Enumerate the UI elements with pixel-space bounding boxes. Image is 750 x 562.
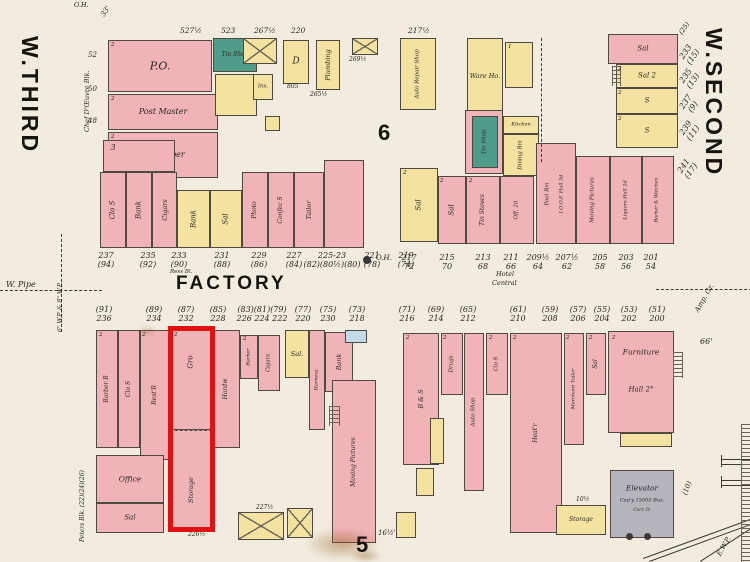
building-label: Hall 2° bbox=[629, 387, 654, 394]
building-label: Clo S bbox=[110, 201, 117, 220]
address-label: (89)234 bbox=[146, 306, 162, 324]
address-line: (86) bbox=[251, 261, 267, 270]
building-label: Auto Shop bbox=[471, 398, 477, 427]
address-line: 236 bbox=[96, 315, 112, 324]
building-label: Sal. bbox=[291, 351, 303, 358]
building-office: Office bbox=[96, 455, 164, 503]
floor-count-mark: 2 bbox=[142, 333, 146, 339]
floor-count-mark: 2 bbox=[406, 336, 410, 342]
hotel-central-label: Central bbox=[492, 280, 517, 287]
address-line: 208 bbox=[542, 315, 558, 324]
address-label: (85)228 bbox=[210, 306, 226, 324]
building-label: Moving Pictures bbox=[351, 437, 357, 487]
address-line: (88) bbox=[214, 261, 230, 270]
floor-count-mark: 2 bbox=[111, 135, 115, 141]
address-label: 233(90) bbox=[171, 252, 187, 270]
address-line: 218 bbox=[349, 315, 365, 324]
address-label: (51)200 bbox=[649, 306, 665, 324]
address-line: 206 bbox=[570, 315, 586, 324]
address-label: 237(94) bbox=[98, 252, 114, 270]
address-line: (94) bbox=[98, 261, 114, 270]
floor-count-mark: 2 bbox=[111, 97, 115, 103]
building-moving-pictures: Moving Pictures bbox=[332, 380, 376, 543]
address-line: 226 224 222 bbox=[237, 315, 288, 324]
floor-count-mark: 2 bbox=[566, 336, 570, 342]
measure-16half: 16½' bbox=[378, 530, 396, 537]
address-line: 72 bbox=[401, 263, 416, 272]
building-label: Sal bbox=[637, 46, 648, 53]
building-label: Merchant Tailor bbox=[572, 369, 577, 410]
address-line: (84) bbox=[286, 261, 302, 270]
address-line: 214 bbox=[428, 315, 444, 324]
building-unlabeled bbox=[352, 38, 378, 55]
addr-217half: 217½ bbox=[408, 27, 430, 35]
building-label: Moving Pictures bbox=[590, 177, 596, 223]
building-off-2d: Off. 2d bbox=[500, 176, 534, 244]
building-clo-s: Clo S bbox=[118, 330, 140, 448]
building-label: I.O.O.F. Hall 3d bbox=[560, 174, 565, 213]
measure-10: (10) bbox=[682, 480, 693, 496]
building-rest-r: Rest'R bbox=[140, 330, 170, 460]
address-label: 207½62 bbox=[555, 254, 578, 272]
building-bank: Bank bbox=[126, 172, 152, 248]
floor-count-mark: 2 bbox=[618, 91, 622, 97]
building-plumbing: Plumbing bbox=[316, 40, 340, 90]
building-unlabeled bbox=[238, 512, 284, 540]
building-label: Tailor bbox=[306, 201, 313, 220]
building-label: S bbox=[645, 128, 650, 135]
building-label: Rest'R bbox=[152, 385, 158, 405]
highlight-rectangle bbox=[168, 326, 215, 532]
building-pool-rm: Pool RmI.O.O.F. Hall 3d bbox=[536, 143, 576, 244]
address-line: 56 bbox=[618, 263, 633, 272]
building-sal: Sal. bbox=[285, 330, 309, 378]
address-line: 204 bbox=[594, 315, 610, 324]
address-line: 212 bbox=[460, 315, 476, 324]
address-label: (61)210 bbox=[510, 306, 526, 324]
building-label: Barber bbox=[247, 348, 252, 366]
address-label: (65)212 bbox=[460, 306, 476, 324]
building-unlabeled bbox=[620, 433, 672, 447]
building-unlabeled bbox=[287, 508, 313, 538]
amp-gr-label: Amp. Gr. bbox=[694, 283, 716, 313]
building-furniture: FurnitureHall 2° bbox=[608, 331, 674, 433]
oh-mark: O.H. bbox=[376, 255, 392, 262]
building-label: Barber B bbox=[104, 375, 110, 402]
addr-25: (25) bbox=[678, 21, 691, 36]
building-label: S bbox=[645, 98, 650, 105]
ress-bl-label: Ress Bl. bbox=[170, 270, 192, 276]
address-line: 200 bbox=[649, 315, 665, 324]
address-label: 225-23(82)(80½)(80) bbox=[303, 252, 360, 270]
building-label: B & S bbox=[418, 389, 425, 408]
block-number-5: 5 bbox=[356, 534, 368, 556]
stairs-hatch-icon bbox=[741, 424, 750, 562]
address-line: (82)(80½)(80) bbox=[303, 261, 360, 270]
building-sal: Sal bbox=[608, 34, 678, 64]
address-label: (69)214 bbox=[428, 306, 444, 324]
building-label: Tin Stoves bbox=[480, 194, 486, 226]
building-label: Elevator bbox=[626, 484, 658, 492]
address-label: 237(9) bbox=[678, 93, 701, 116]
building-label: Office bbox=[119, 475, 142, 483]
floor-count-mark: 2 bbox=[589, 336, 593, 342]
building-unlabeled bbox=[215, 74, 257, 116]
water-pipe-label: W. Pipe bbox=[6, 281, 36, 289]
address-line: 232 bbox=[178, 315, 194, 324]
floor-count-mark: 1 bbox=[508, 45, 512, 51]
building-unlabeled bbox=[243, 38, 277, 64]
building-label: Storage bbox=[569, 517, 593, 523]
building-p-o: P.O. bbox=[108, 40, 212, 92]
building-label: Ins. bbox=[258, 84, 268, 90]
address-label: (53)202 bbox=[621, 306, 637, 324]
address-line: 230 bbox=[320, 315, 336, 324]
building-label: P.O. bbox=[150, 61, 171, 72]
peters-blk-label: Peters Blk. (22)(24)(26) bbox=[80, 470, 86, 542]
addr-269half: 269½ bbox=[349, 57, 366, 63]
building-label: Off. 2d bbox=[514, 201, 520, 220]
building-harness: Harness bbox=[309, 330, 325, 430]
address-label: 21570 bbox=[439, 254, 454, 272]
address-label: 20154 bbox=[643, 254, 658, 272]
floor-count-mark: 2 bbox=[618, 67, 622, 73]
building-label: Heat'r bbox=[533, 423, 539, 442]
oh-mark: O.H. bbox=[74, 2, 89, 9]
floor-count-mark: 2 bbox=[612, 336, 616, 342]
building-unlabeled bbox=[430, 418, 444, 464]
building-label: Plumbing bbox=[325, 49, 332, 80]
water-pipe-size-label: 6" W.P. & 8" W.P. bbox=[58, 282, 64, 332]
lot-number: 48 bbox=[88, 118, 97, 125]
building-tailor: Tailor bbox=[294, 172, 324, 248]
address-label: (83)(81)(79)226 224 222 bbox=[237, 306, 288, 324]
building-sal: Sal bbox=[210, 190, 242, 248]
building-label: Hardw bbox=[223, 379, 229, 400]
building-label: Dining Rm bbox=[518, 140, 524, 170]
address-label: 21166 bbox=[503, 254, 518, 272]
building-label: Sal 2 bbox=[638, 73, 656, 80]
building-label: Clo S bbox=[494, 357, 500, 372]
building-unlabeled bbox=[345, 330, 367, 343]
building-label: Furniture bbox=[623, 348, 660, 356]
railroad-line bbox=[721, 455, 722, 467]
building-post-master: Post Master bbox=[108, 94, 218, 130]
floor-count-mark: 2 bbox=[440, 179, 444, 185]
floor-count-mark: 2 bbox=[443, 336, 447, 342]
building-label: Bank bbox=[190, 210, 197, 228]
lot-number: 50 bbox=[88, 86, 97, 93]
building-unlabeled bbox=[416, 468, 434, 496]
block-number-6: 6 bbox=[378, 122, 390, 144]
building-merchant-tailor: Merchant Tailor bbox=[564, 333, 584, 445]
floor-count-mark: 2 bbox=[111, 43, 115, 49]
building-tin-stoves: Tin Stoves bbox=[466, 176, 500, 244]
building-label: Liquors Hall 2d bbox=[624, 180, 629, 219]
building-sal: Sal bbox=[96, 503, 164, 533]
floor-count-mark: 2 bbox=[469, 179, 473, 185]
stairs-hatch-icon bbox=[673, 352, 683, 378]
paper-stain bbox=[138, 327, 156, 335]
map-dot-icon bbox=[626, 533, 633, 540]
address-line: (78) bbox=[364, 261, 380, 270]
address-line: 220 bbox=[295, 315, 311, 324]
building-label: Sal bbox=[416, 199, 423, 210]
floor-count-mark: 2 bbox=[99, 333, 103, 339]
building-label: Auto Repair Shop bbox=[415, 49, 421, 98]
address-line: 58 bbox=[592, 263, 607, 272]
addr-265half: 265½ bbox=[310, 92, 327, 98]
address-line: 62 bbox=[555, 263, 578, 272]
address-label: 21772 bbox=[401, 254, 416, 272]
address-label: 235(13) bbox=[678, 67, 702, 91]
building-auto-repair-shop: Auto Repair Shop bbox=[400, 38, 436, 110]
building-label: Bank bbox=[136, 201, 143, 219]
address-label: 227(84) bbox=[286, 252, 302, 270]
building-cigars: Cigars bbox=[258, 335, 280, 391]
building-label: Drugs bbox=[449, 356, 455, 373]
building-confec-s: Confec S bbox=[268, 172, 294, 248]
address-label: 239(11) bbox=[678, 119, 702, 143]
building-bank: Bank bbox=[177, 190, 210, 248]
building-label: Barber & Watches bbox=[656, 178, 661, 223]
ewp-label: E.W.P. bbox=[716, 536, 733, 558]
building-label: Post Master bbox=[139, 108, 188, 116]
floor-count-mark: 2 bbox=[403, 171, 407, 177]
address-label: (87)232 bbox=[178, 306, 194, 324]
address-label: (57)206 bbox=[570, 306, 586, 324]
dashed-line bbox=[541, 38, 542, 162]
addr-527half: 527½ bbox=[180, 27, 202, 35]
address-line: (92) bbox=[140, 261, 156, 270]
address-line: 234 bbox=[146, 315, 162, 324]
building-heat-r: Heat'r bbox=[510, 333, 562, 533]
building-drugs: Drugs bbox=[441, 333, 463, 395]
address-line: 68 bbox=[475, 263, 490, 272]
building-dining-rm: Dining Rm bbox=[503, 134, 539, 176]
building-clo-s: Clo S bbox=[486, 333, 508, 395]
building-label: Clo S bbox=[126, 381, 132, 397]
building-auto-shop: Auto Shop bbox=[464, 333, 484, 491]
floor-count-mark: 2 bbox=[243, 337, 247, 343]
address-label: 209½64 bbox=[526, 254, 549, 272]
address-label: 233(15) bbox=[678, 43, 702, 67]
addr-805: 805 bbox=[287, 84, 298, 90]
building-label: Tin Shop bbox=[482, 130, 488, 155]
building-s: S bbox=[616, 114, 678, 148]
address-label: (91)236 bbox=[96, 306, 112, 324]
dashed-line bbox=[0, 290, 102, 291]
measure-10half: 10½ bbox=[576, 497, 589, 503]
lot-number: 52 bbox=[88, 52, 97, 59]
map-dot-icon bbox=[644, 533, 651, 540]
building-3: 3 bbox=[103, 140, 175, 172]
building-barber-b: Barber B bbox=[96, 330, 118, 448]
building-kitchen: Kitchen bbox=[503, 116, 539, 134]
building-unlabeled bbox=[396, 512, 416, 538]
sanborn-map: P.O.Post MasterWall PaperTin ShopDPlumbi… bbox=[0, 0, 750, 562]
address-label: 235(92) bbox=[140, 252, 156, 270]
floor-count-mark: 2 bbox=[489, 336, 493, 342]
building-hardw: Hardw bbox=[212, 330, 240, 448]
address-line: 228 bbox=[210, 315, 226, 324]
building-unlabeled bbox=[324, 160, 364, 248]
building-unlabeled bbox=[265, 116, 280, 131]
addr-220: 220 bbox=[291, 27, 305, 35]
building-label: Harness bbox=[315, 369, 320, 390]
building-tin-shop: Tin Shop bbox=[472, 116, 498, 168]
address-label: (77)220 bbox=[295, 306, 311, 324]
address-line: 54 bbox=[643, 263, 658, 272]
address-line: 64 bbox=[526, 263, 549, 272]
building-label: Kitchen bbox=[511, 123, 531, 128]
building-elevator: ElevatorCap'y 15000 Bus.Corr. Ir. bbox=[610, 470, 674, 538]
building-barber-watches: Barber & Watches bbox=[642, 156, 674, 244]
building-label: Sal bbox=[593, 359, 599, 369]
street-w-third: W.THIRD bbox=[18, 36, 41, 154]
building-ware-ho: Ware Ho. bbox=[467, 38, 503, 114]
building-label: Cigars bbox=[266, 354, 272, 372]
floor-count-mark: 2 bbox=[618, 117, 622, 123]
address-label: (59)208 bbox=[542, 306, 558, 324]
building-cigars: Cigars bbox=[152, 172, 177, 248]
building-label: Sal bbox=[124, 515, 135, 522]
address-label: 231(88) bbox=[214, 252, 230, 270]
building-label: D bbox=[292, 58, 299, 67]
address-label: 21368 bbox=[475, 254, 490, 272]
building-label: Corr. Ir. bbox=[633, 509, 651, 514]
measure-33: 33' bbox=[100, 5, 112, 18]
building-s: S bbox=[616, 88, 678, 114]
building-storage: Storage bbox=[556, 505, 606, 535]
building-liquors-hall-2d: Liquors Hall 2d bbox=[610, 156, 642, 244]
addr-523: 523 bbox=[221, 27, 235, 35]
hotel-central-label: Hotel bbox=[496, 271, 514, 278]
street-factory: FACTORY bbox=[176, 274, 287, 293]
address-label: (71)216 bbox=[399, 306, 415, 324]
building-label: Ware Ho. bbox=[470, 73, 501, 80]
address-label: 20558 bbox=[592, 254, 607, 272]
railroad-line bbox=[721, 476, 722, 488]
building-label: 3 bbox=[110, 144, 115, 152]
building-sal: Sal bbox=[586, 333, 606, 395]
building-moving-pictures: Moving Pictures bbox=[576, 156, 610, 244]
address-label: 20356 bbox=[618, 254, 633, 272]
address-line: 70 bbox=[439, 263, 454, 272]
building-label: Sal bbox=[449, 204, 456, 215]
address-line: 216 bbox=[399, 315, 415, 324]
building-clo-s: Clo S bbox=[100, 172, 126, 248]
building-label: Photo bbox=[252, 201, 258, 219]
building-label: Cigars bbox=[161, 199, 168, 221]
building-sal: Sal bbox=[438, 176, 466, 244]
address-line: 210 bbox=[510, 315, 526, 324]
addr-267half: 267½ bbox=[254, 27, 276, 35]
building-label: Sal bbox=[223, 213, 230, 224]
floor-count-mark: 2 bbox=[513, 336, 517, 342]
address-label: 241(17) bbox=[676, 157, 700, 181]
building-sal-2: Sal 2 bbox=[616, 64, 678, 88]
building-photo: Photo bbox=[242, 172, 268, 248]
building-label: Pool Rm bbox=[545, 182, 551, 205]
address-label: (55)204 bbox=[594, 306, 610, 324]
address-line: 202 bbox=[621, 315, 637, 324]
measure-66: 66' bbox=[700, 338, 712, 346]
building-ins: Ins. bbox=[253, 74, 273, 100]
street-w-second: W.SECOND bbox=[702, 28, 725, 177]
address-label: (73)218 bbox=[349, 306, 365, 324]
address-label: 229(86) bbox=[251, 252, 267, 270]
building-d: D bbox=[283, 40, 309, 84]
building-label: Bank bbox=[336, 354, 343, 371]
building-sal: Sal bbox=[400, 168, 438, 242]
building-label: Cap'y 15000 Bus. bbox=[620, 499, 664, 504]
stairs-hatch-icon bbox=[329, 406, 340, 426]
address-label: (75)230 bbox=[320, 306, 336, 324]
addr-226half: 226½ bbox=[188, 532, 205, 538]
addr-227half: 227½ bbox=[256, 505, 273, 511]
building-label: Confec S bbox=[278, 196, 284, 223]
